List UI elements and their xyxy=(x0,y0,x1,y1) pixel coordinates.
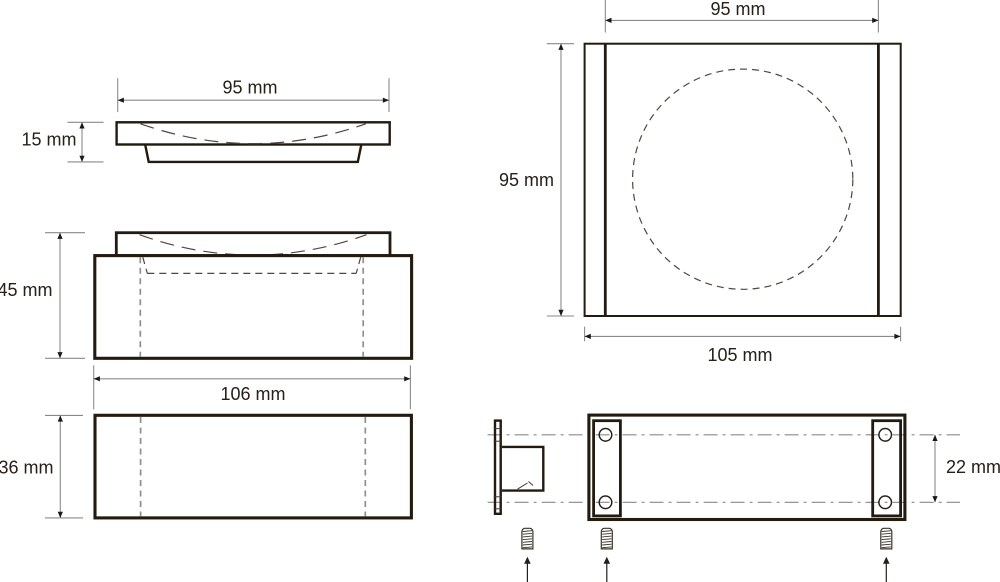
svg-text:15 mm: 15 mm xyxy=(21,129,76,149)
svg-text:45 mm: 45 mm xyxy=(0,280,53,300)
svg-text:95 mm: 95 mm xyxy=(499,170,554,190)
svg-text:22 mm: 22 mm xyxy=(946,457,1000,477)
svg-text:95 mm: 95 mm xyxy=(710,0,765,19)
svg-text:105 mm: 105 mm xyxy=(707,345,772,365)
svg-text:36 mm: 36 mm xyxy=(0,457,54,477)
svg-text:106 mm: 106 mm xyxy=(220,384,285,404)
svg-text:95 mm: 95 mm xyxy=(222,77,277,97)
